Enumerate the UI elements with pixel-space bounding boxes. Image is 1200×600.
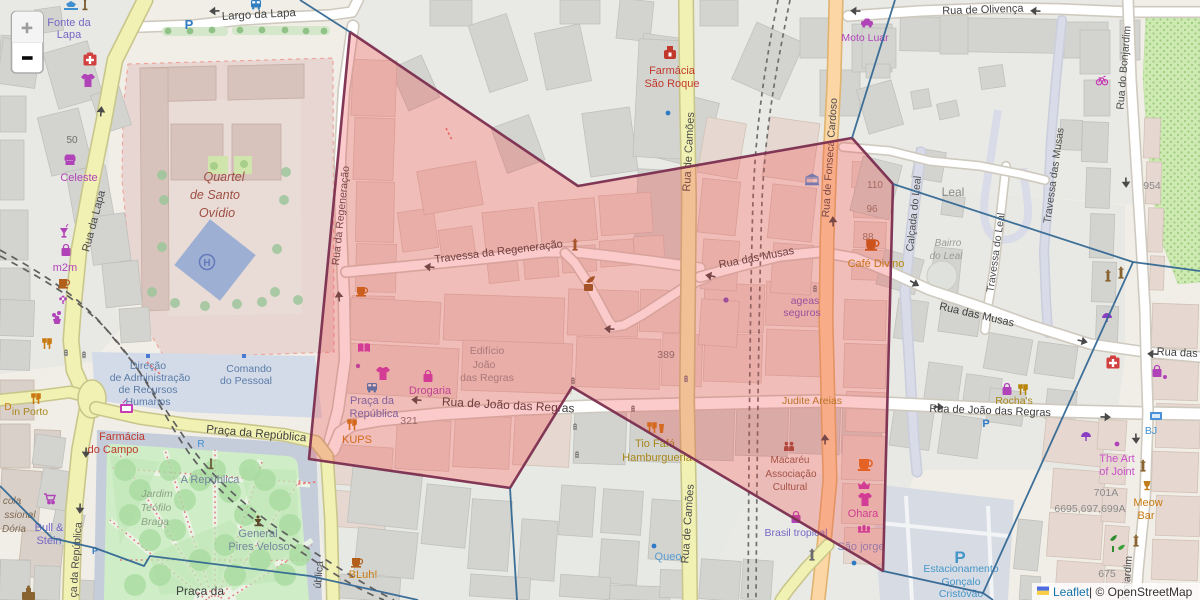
svg-text:Jardim: Jardim xyxy=(140,488,173,500)
svg-text:in Porto: in Porto xyxy=(12,406,48,418)
svg-text:Fonte da: Fonte da xyxy=(47,17,91,29)
svg-text:A República: A República xyxy=(181,474,241,486)
svg-text:675: 675 xyxy=(1098,568,1116,580)
svg-text:Meow: Meow xyxy=(1133,497,1162,509)
svg-text:Gonçalo: Gonçalo xyxy=(941,576,980,588)
svg-text:m2m: m2m xyxy=(53,262,77,274)
svg-text:6695,697,699A: 6695,697,699A xyxy=(1054,503,1125,515)
svg-text:Comando: Comando xyxy=(226,363,272,375)
svg-text:General: General xyxy=(238,528,277,540)
svg-text:Pires Veloso: Pires Veloso xyxy=(228,541,289,553)
svg-text:Cristóvão: Cristóvão xyxy=(939,588,984,600)
svg-text:ública: ública xyxy=(312,560,326,589)
svg-text:de Recursos: de Recursos xyxy=(119,384,178,396)
svg-text:Leaflet: Leaflet xyxy=(1053,585,1090,599)
svg-text:do Pessoal: do Pessoal xyxy=(220,375,272,387)
svg-text:Estacionamento: Estacionamento xyxy=(923,563,998,575)
svg-text:Queo: Queo xyxy=(655,551,682,563)
svg-text:P: P xyxy=(185,17,194,32)
svg-text:Farmácia: Farmácia xyxy=(649,65,696,77)
svg-text:Braga: Braga xyxy=(141,516,169,528)
svg-text:Lapa: Lapa xyxy=(57,29,82,41)
svg-text:Leal: Leal xyxy=(942,185,965,199)
svg-text:Quartel: Quartel xyxy=(204,170,246,184)
svg-text:de Santo: de Santo xyxy=(190,188,240,202)
svg-text:The Art: The Art xyxy=(1099,453,1134,465)
svg-text:Bairro: Bairro xyxy=(935,238,962,249)
svg-text:Bar: Bar xyxy=(1137,510,1154,522)
svg-text:R: R xyxy=(197,439,204,450)
svg-text:Celeste: Celeste xyxy=(60,172,97,184)
svg-text:São Roque: São Roque xyxy=(644,78,699,90)
svg-text:P: P xyxy=(982,418,989,430)
svg-text:701A: 701A xyxy=(1094,487,1119,499)
svg-text:Dória: Dória xyxy=(2,524,26,535)
svg-text:Praça da: Praça da xyxy=(176,584,224,598)
svg-text:Teófilo: Teófilo xyxy=(141,502,172,514)
svg-text:de Administração: de Administração xyxy=(110,372,191,384)
svg-text:of Joint: of Joint xyxy=(1099,466,1134,478)
svg-text:BLuh!: BLuh! xyxy=(349,569,378,581)
svg-text:Stein: Stein xyxy=(36,535,61,547)
svg-text:do Leal: do Leal xyxy=(930,251,964,262)
svg-text:Farmácia: Farmácia xyxy=(99,431,146,443)
svg-text:Hamburgueria: Hamburgueria xyxy=(622,452,693,464)
svg-text:D: D xyxy=(4,402,11,413)
svg-text:BJ: BJ xyxy=(1145,425,1157,437)
svg-text:| © OpenStreetMap: | © OpenStreetMap xyxy=(1089,585,1193,599)
svg-text:ssional: ssional xyxy=(4,510,36,521)
svg-text:Direção: Direção xyxy=(130,360,166,372)
svg-text:do Campo: do Campo xyxy=(88,444,139,456)
svg-text:954: 954 xyxy=(1143,180,1161,192)
svg-text:50: 50 xyxy=(66,135,78,146)
svg-text:H: H xyxy=(203,258,210,269)
svg-text:Ovídio: Ovídio xyxy=(199,206,235,220)
svg-text:Rua das: Rua das xyxy=(1156,346,1198,360)
